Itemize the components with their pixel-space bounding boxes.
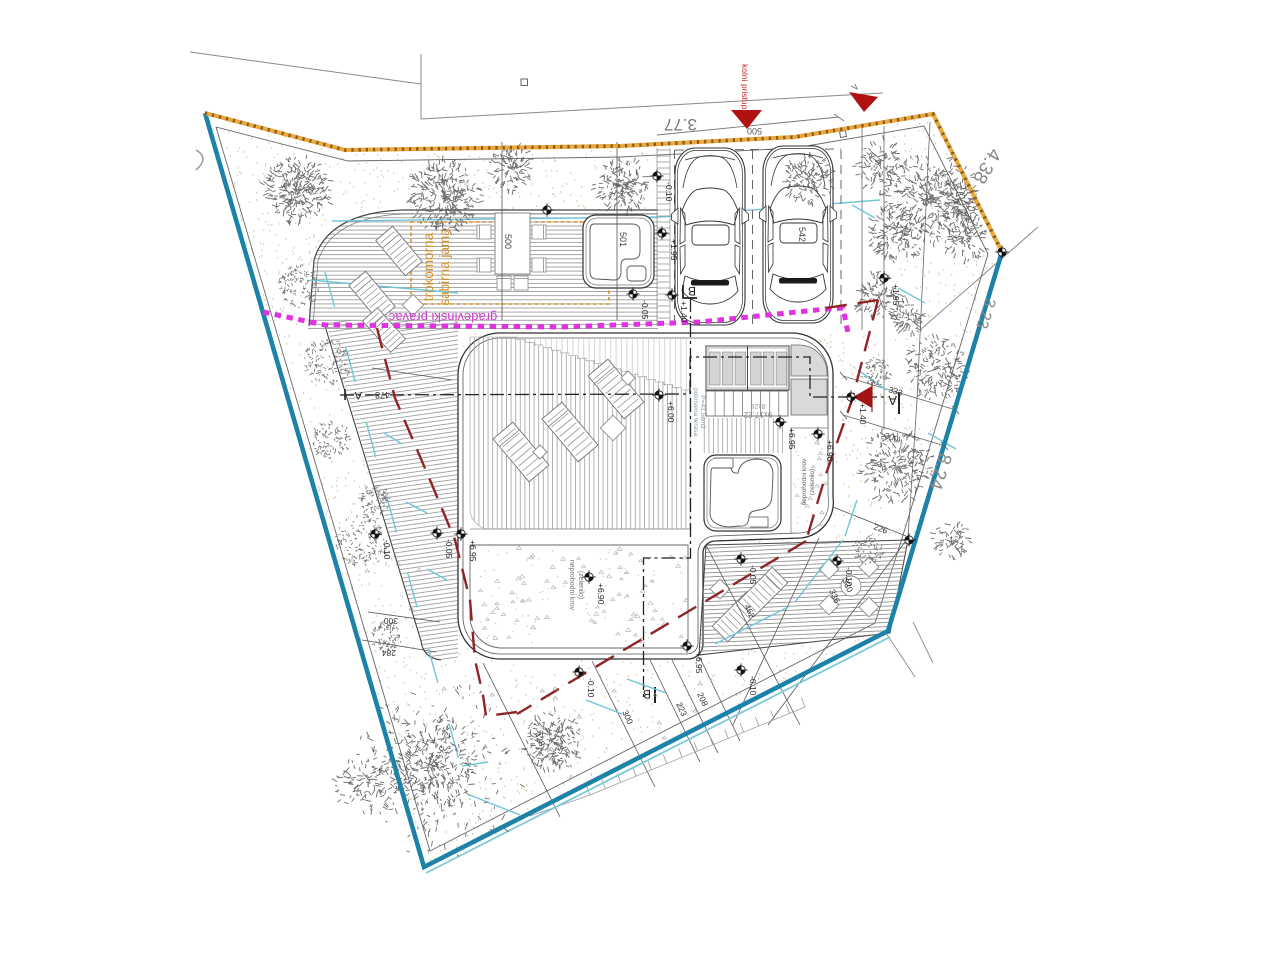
svg-text:-0.10: -0.10 [664, 182, 674, 202]
svg-text:P=43.56m2: P=43.56m2 [699, 395, 706, 429]
svg-text:(zelenilo): (zelenilo) [809, 469, 816, 495]
svg-text:-0.05: -0.05 [748, 565, 758, 585]
svg-text:neprohodni krov: neprohodni krov [801, 458, 808, 505]
svg-text:+1.40: +1.40 [858, 403, 868, 425]
svg-text:+6.95: +6.95 [787, 428, 797, 450]
svg-text:-0.05: -0.05 [640, 300, 650, 320]
svg-text:B: B [643, 687, 651, 701]
svg-text:pokrivena terasa: pokrivena terasa [692, 388, 699, 436]
svg-text:9x17.22: 9x17.22 [743, 410, 772, 419]
svg-text:A: A [354, 389, 362, 401]
svg-text:284: 284 [382, 648, 396, 658]
svg-text:-0.10: -0.10 [748, 676, 758, 696]
svg-text:+1.95: +1.95 [669, 239, 679, 261]
svg-text:-0.05: -0.05 [444, 539, 454, 559]
svg-text:+6.95: +6.95 [694, 652, 704, 674]
svg-text:B: B [688, 284, 696, 298]
svg-text:+6.00: +6.00 [666, 401, 676, 423]
svg-text:sabirna jama: sabirna jama [437, 228, 452, 306]
svg-text:(zelenilo): (zelenilo) [577, 571, 584, 599]
svg-text:500: 500 [747, 126, 762, 136]
svg-text:500: 500 [503, 234, 513, 249]
svg-text:gradevinski pravac: gradevinski pravac [388, 310, 497, 325]
svg-text:+1.40: +1.40 [679, 301, 689, 323]
svg-text:-0.10: -0.10 [586, 678, 596, 698]
svg-text:trokomorna: trokomorna [421, 232, 436, 301]
svg-text:501: 501 [618, 232, 628, 247]
svg-text:478: 478 [375, 390, 390, 400]
svg-text:+6.95: +6.95 [468, 540, 478, 562]
svg-text:-0.10: -0.10 [382, 540, 392, 560]
svg-text:300: 300 [384, 616, 398, 626]
svg-text:+6.90: +6.90 [596, 583, 606, 605]
svg-text:neprohodni krov: neprohodni krov [568, 560, 575, 611]
svg-text:+1.95: +1.95 [891, 284, 901, 306]
svg-text:kolni pristup: kolni pristup [740, 64, 750, 110]
svg-text:542: 542 [797, 227, 807, 242]
svg-text:8x28: 8x28 [750, 402, 765, 409]
svg-text:-0.10: -0.10 [844, 567, 854, 587]
svg-text:+6.90: +6.90 [825, 440, 835, 462]
svg-text:3.77: 3.77 [664, 115, 697, 134]
